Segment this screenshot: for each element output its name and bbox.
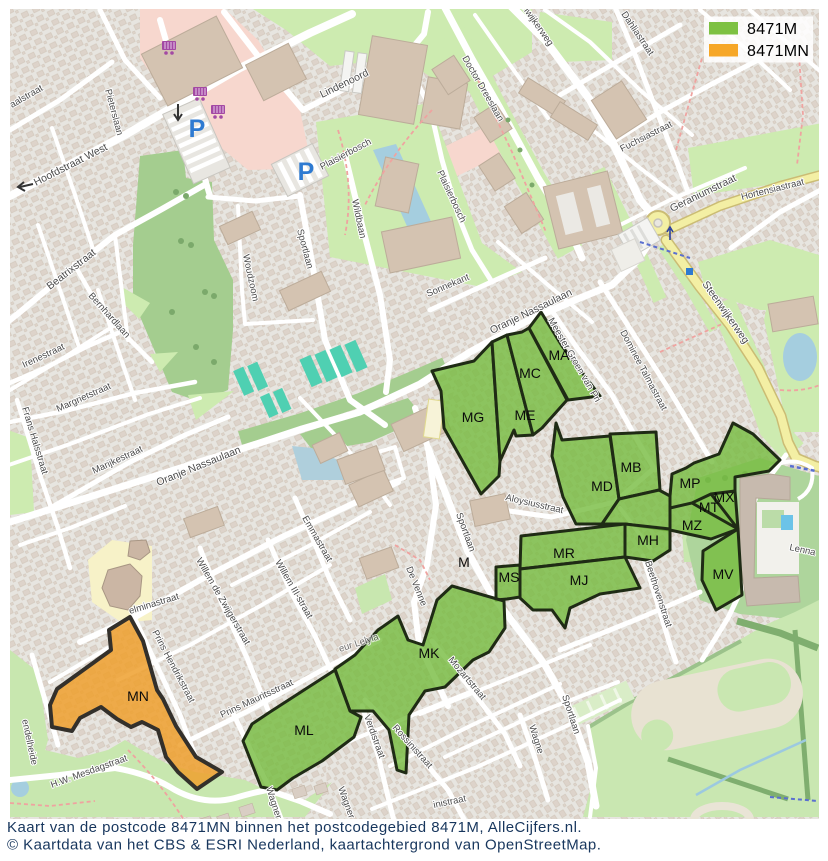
svg-text:MR: MR <box>553 545 575 561</box>
svg-text:MH: MH <box>637 532 659 548</box>
svg-text:8471M: 8471M <box>747 21 797 38</box>
svg-text:8471MN: 8471MN <box>747 43 809 60</box>
svg-text:P: P <box>189 115 206 143</box>
svg-text:MK: MK <box>419 645 441 661</box>
svg-text:MJ: MJ <box>570 572 589 588</box>
svg-text:ME: ME <box>515 407 536 423</box>
svg-text:MN: MN <box>127 688 149 704</box>
svg-text:Kaart van de postcode 8471MN b: Kaart van de postcode 8471MN binnen het … <box>7 819 582 836</box>
svg-text:MA: MA <box>549 347 571 363</box>
svg-text:MS: MS <box>499 569 520 585</box>
svg-text:MB: MB <box>621 459 642 475</box>
svg-text:© Kaartdata van het CBS & ESRI: © Kaartdata van het CBS & ESRI Nederland… <box>7 837 601 854</box>
svg-text:MV: MV <box>713 566 735 582</box>
svg-text:MT: MT <box>699 499 720 515</box>
svg-text:M: M <box>458 554 470 570</box>
svg-text:ML: ML <box>294 722 314 738</box>
svg-text:MD: MD <box>591 478 613 494</box>
svg-text:MP: MP <box>680 475 701 491</box>
svg-text:P: P <box>298 158 315 186</box>
svg-text:MG: MG <box>462 409 485 425</box>
svg-text:MZ: MZ <box>682 517 703 533</box>
svg-text:MC: MC <box>519 365 541 381</box>
